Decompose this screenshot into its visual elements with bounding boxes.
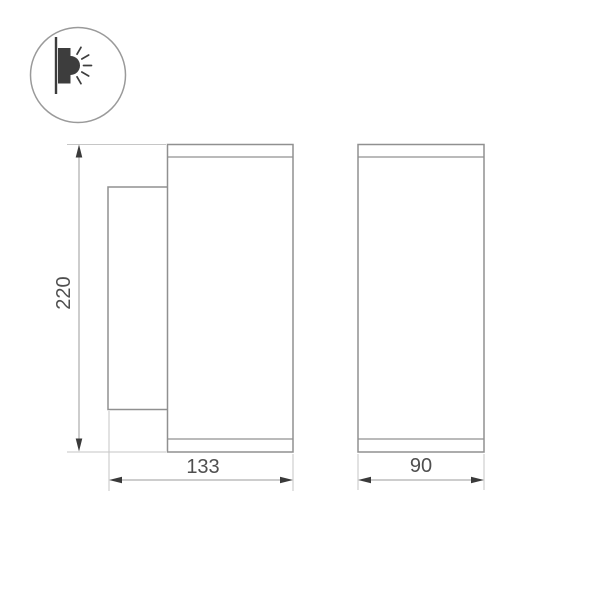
height-arrow-down (76, 439, 83, 452)
side-view-body (168, 145, 294, 453)
depth-arrow-left (358, 477, 371, 484)
width-arrow-left (109, 477, 122, 484)
icon-lamp-body (58, 48, 71, 84)
height-dimension-label: 220 (53, 276, 75, 309)
wall-light-icon (31, 28, 126, 123)
depth-dimension-label: 90 (410, 455, 432, 477)
width-dimension-label: 133 (186, 456, 219, 478)
front-view-body (358, 145, 484, 453)
technical-drawing: 220 133 90 (0, 0, 600, 600)
depth-dimension: 90 (358, 454, 484, 490)
width-arrow-right (280, 477, 293, 484)
height-arrow-up (76, 145, 83, 158)
icon-circle (31, 28, 126, 123)
side-view (108, 145, 293, 453)
depth-arrow-right (471, 477, 484, 484)
front-view (358, 145, 484, 453)
technical-drawing-page: 220 133 90 (0, 0, 600, 600)
side-view-mount-plate (108, 187, 168, 410)
